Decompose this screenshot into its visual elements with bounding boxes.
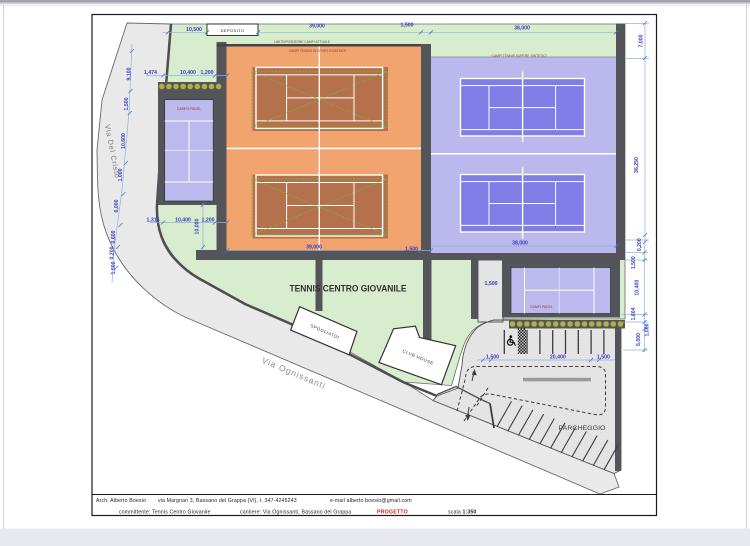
svg-text:0,600: 0,600	[111, 230, 117, 243]
svg-text:1,474: 1,474	[144, 70, 157, 76]
svg-text:1,000: 1,000	[645, 323, 651, 336]
svg-text:scala 1:350: scala 1:350	[448, 510, 476, 516]
svg-text:1,315: 1,315	[147, 218, 160, 224]
svg-text:1,500: 1,500	[631, 256, 637, 269]
svg-text:DEPOSITO: DEPOSITO	[221, 28, 245, 33]
svg-text:via Margnan 3, Bassano del Gra: via Margnan 3, Bassano del Grappa (VI), …	[158, 498, 297, 504]
svg-text:CAMPI PADEL: CAMPI PADEL	[530, 305, 553, 309]
svg-text:9,100: 9,100	[127, 67, 133, 80]
svg-text:PROGETTO: PROGETTO	[377, 510, 408, 516]
svg-text:6,000: 6,000	[114, 199, 120, 212]
svg-text:20,400: 20,400	[550, 355, 566, 361]
svg-text:10,400: 10,400	[175, 218, 191, 224]
svg-text:PARCHEGGIO: PARCHEGGIO	[559, 425, 606, 432]
svg-text:1,500: 1,500	[124, 97, 130, 110]
svg-text:10,400: 10,400	[635, 280, 641, 296]
svg-text:10,500: 10,500	[186, 27, 202, 33]
svg-text:39,000: 39,000	[306, 245, 322, 251]
svg-text:1,500: 1,500	[486, 355, 499, 361]
svg-text:5,000: 5,000	[636, 333, 642, 346]
svg-text:1,200: 1,200	[201, 70, 214, 76]
svg-text:10,600: 10,600	[121, 133, 127, 149]
svg-text:10,000: 10,000	[195, 218, 201, 234]
svg-text:1,500: 1,500	[405, 247, 418, 253]
svg-text:1,500: 1,500	[111, 261, 117, 274]
svg-text:1,500: 1,500	[485, 281, 498, 287]
svg-text:1,500: 1,500	[401, 23, 414, 29]
svg-text:Arch. Alberto Boesio: Arch. Alberto Boesio	[96, 498, 146, 504]
svg-text:1,500: 1,500	[597, 355, 610, 361]
svg-text:38,000: 38,000	[514, 26, 530, 32]
svg-text:39,000: 39,000	[309, 24, 325, 30]
svg-text:CAMPI TENNIS IN SPORT ESISTENT: CAMPI TENNIS IN SPORT ESISTENTI	[289, 49, 347, 53]
svg-text:10,400: 10,400	[180, 70, 196, 76]
svg-text:7,000: 7,000	[639, 34, 645, 47]
svg-text:e-mail alberto.boesio@gmail.c: e-mail alberto.boesio@gmail.com	[330, 498, 412, 504]
svg-text:TENNIS CENTRO GIOVANILE: TENNIS CENTRO GIOVANILE	[290, 284, 407, 294]
svg-text:CAMPO PADEL: CAMPO PADEL	[177, 107, 201, 111]
svg-text:1,000: 1,000	[118, 168, 124, 181]
svg-text:committente: Tennis Centro Gi: committente: Tennis Centro Giovanile	[119, 510, 211, 516]
svg-text:0,200: 0,200	[637, 238, 643, 251]
svg-text:1,200: 1,200	[202, 218, 215, 224]
svg-text:0,200: 0,200	[110, 246, 116, 259]
svg-text:1,604: 1,604	[631, 307, 637, 320]
svg-text:38,000: 38,000	[512, 241, 528, 247]
svg-text:36,250: 36,250	[634, 157, 640, 173]
svg-text:LIMITE/POSIZIONE CAMPI ATTUALE: LIMITE/POSIZIONE CAMPI ATTUALE	[274, 40, 331, 44]
svg-text:cantiere: Via Ognissanti, Bass: cantiere: Via Ognissanti, Bassano del Gr…	[240, 510, 351, 516]
svg-text:CAMPI TENNIS SUPERF. SINTETICI: CAMPI TENNIS SUPERF. SINTETICI	[491, 54, 546, 58]
